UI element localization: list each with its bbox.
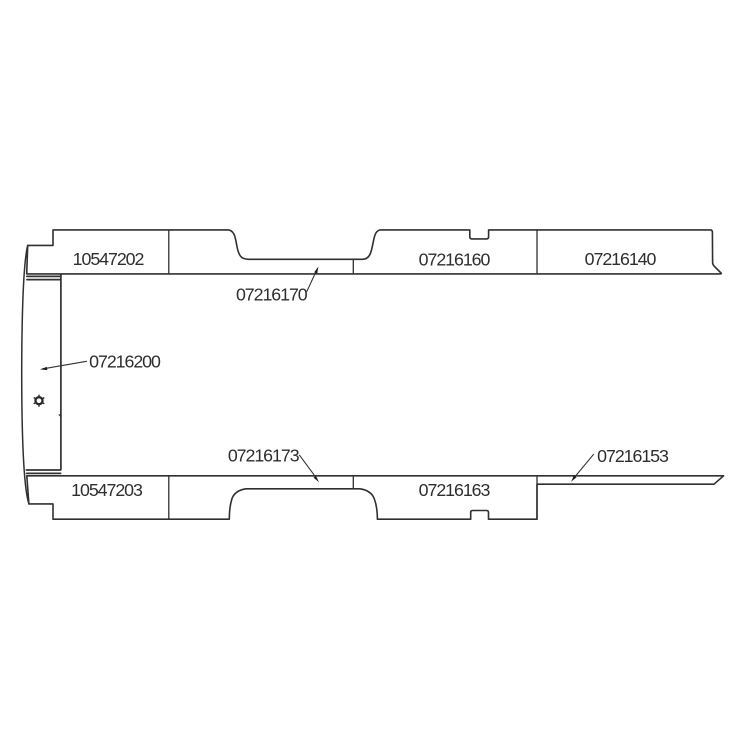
svg-text:07216170: 07216170 — [236, 285, 308, 305]
svg-text:07216140: 07216140 — [585, 249, 657, 269]
svg-text:07216173: 07216173 — [228, 446, 300, 466]
svg-text:07216153: 07216153 — [597, 446, 669, 466]
svg-text:07216200: 07216200 — [89, 351, 161, 371]
svg-text:07216163: 07216163 — [419, 480, 491, 500]
svg-text:10547203: 10547203 — [71, 480, 143, 500]
svg-text:07216160: 07216160 — [419, 249, 491, 269]
svg-text:10547202: 10547202 — [73, 249, 144, 269]
